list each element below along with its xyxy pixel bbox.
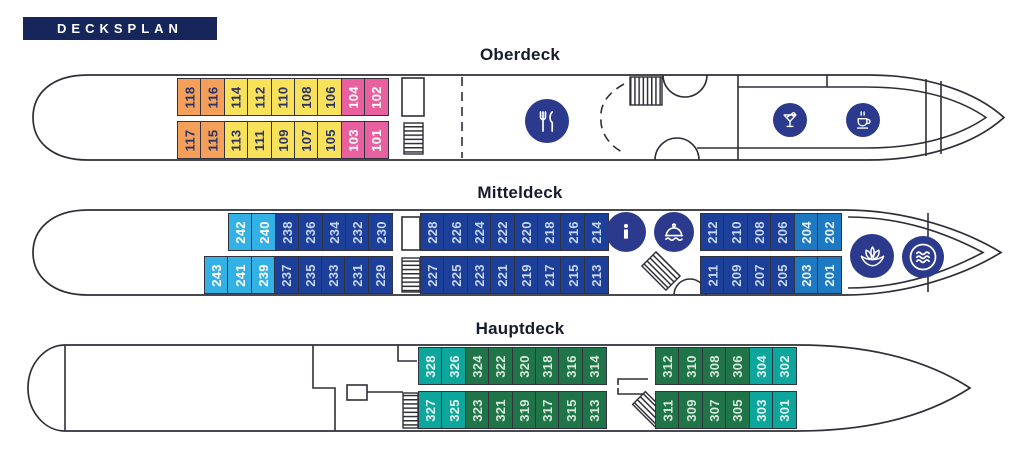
cabin-number: 220 (519, 221, 534, 244)
cabin-number: 326 (446, 355, 461, 378)
cabin-325[interactable]: 325 (441, 391, 466, 429)
cabin-number: 210 (728, 221, 743, 244)
cabin-210[interactable]: 210 (723, 213, 748, 251)
cabin-111[interactable]: 111 (247, 121, 272, 159)
cabin-number: 107 (299, 129, 314, 152)
cabin-227[interactable]: 227 (420, 256, 445, 294)
cabin-310[interactable]: 310 (678, 347, 703, 385)
cabin-number: 325 (446, 399, 461, 422)
cabin-number: 228 (425, 221, 440, 244)
cabin-number: 319 (517, 399, 532, 422)
cabin-number: 211 (705, 264, 720, 286)
hauptdeck-cabins-top-2: 312310308306304302 (655, 347, 797, 385)
cabin-number: 323 (470, 399, 485, 422)
cabin-306[interactable]: 306 (725, 347, 750, 385)
restaurant-icon (525, 99, 569, 143)
cabin-204[interactable]: 204 (794, 213, 819, 251)
cabin-number: 216 (565, 221, 580, 244)
cabin-number: 104 (346, 86, 361, 109)
cabin-323[interactable]: 323 (465, 391, 490, 429)
cabin-212[interactable]: 212 (700, 213, 725, 251)
cabin-229[interactable]: 229 (368, 256, 393, 294)
cabin-225[interactable]: 225 (443, 256, 468, 294)
cabin-207[interactable]: 207 (747, 256, 772, 294)
cabin-118[interactable]: 118 (177, 78, 202, 116)
cabin-number: 324 (470, 355, 485, 378)
cabin-106[interactable]: 106 (317, 78, 342, 116)
cabin-number: 327 (423, 399, 438, 422)
cabin-327[interactable]: 327 (418, 391, 443, 429)
cabin-307[interactable]: 307 (702, 391, 727, 429)
cabin-239[interactable]: 239 (251, 256, 276, 294)
cabin-number: 317 (540, 399, 555, 422)
cabin-303[interactable]: 303 (749, 391, 774, 429)
cabin-number: 217 (542, 264, 557, 287)
cabin-102[interactable]: 102 (364, 78, 389, 116)
deck-title-mitteldeck: Mitteldeck (420, 183, 620, 203)
cabin-112[interactable]: 112 (247, 78, 272, 116)
cabin-236[interactable]: 236 (298, 213, 323, 251)
cabin-number: 116 (205, 86, 220, 108)
cabin-number: 302 (777, 355, 792, 378)
cabin-number: 310 (683, 355, 698, 378)
cabin-232[interactable]: 232 (345, 213, 370, 251)
cabin-number: 313 (587, 399, 602, 422)
cabin-205[interactable]: 205 (770, 256, 795, 294)
cabin-238[interactable]: 238 (275, 213, 300, 251)
cabin-226[interactable]: 226 (443, 213, 468, 251)
cabin-number: 201 (822, 264, 837, 287)
cabin-number: 322 (493, 355, 508, 378)
cabin-228[interactable]: 228 (420, 213, 445, 251)
cabin-number: 233 (326, 264, 341, 287)
cabin-314[interactable]: 314 (582, 347, 607, 385)
cabin-216[interactable]: 216 (560, 213, 585, 251)
cabin-312[interactable]: 312 (655, 347, 680, 385)
cabin-number: 229 (373, 264, 388, 287)
cabin-number: 306 (730, 355, 745, 378)
cabin-number: 305 (730, 399, 745, 422)
cabin-number: 214 (589, 221, 604, 244)
cabin-220[interactable]: 220 (514, 213, 539, 251)
decksplan-header: DECKSPLAN (23, 17, 217, 40)
cabin-number: 303 (754, 399, 769, 422)
cabin-number: 315 (563, 399, 578, 422)
cabin-number: 240 (256, 221, 271, 244)
cabin-number: 227 (425, 264, 440, 287)
cabin-315[interactable]: 315 (558, 391, 583, 429)
cabin-213[interactable]: 213 (584, 256, 609, 294)
cabin-107[interactable]: 107 (294, 121, 319, 159)
cabin-321[interactable]: 321 (488, 391, 513, 429)
cabin-number: 225 (448, 264, 463, 287)
hauptdeck-cabins-bottom-1: 327325323321319317315313 (418, 391, 607, 429)
cabin-number: 110 (276, 86, 291, 108)
cabin-number: 114 (229, 86, 244, 108)
mitteldeck-cabins-top-1: 242240238236234232230 (228, 213, 393, 251)
cabin-number: 108 (299, 86, 314, 109)
cabin-number: 218 (542, 221, 557, 244)
cabin-328[interactable]: 328 (418, 347, 443, 385)
cabin-316[interactable]: 316 (558, 347, 583, 385)
cabin-115[interactable]: 115 (200, 121, 225, 159)
cabin-319[interactable]: 319 (512, 391, 537, 429)
cabin-number: 243 (209, 264, 224, 287)
cabin-318[interactable]: 318 (535, 347, 560, 385)
cabin-number: 115 (205, 129, 220, 151)
cabin-243[interactable]: 243 (204, 256, 229, 294)
cabin-211[interactable]: 211 (700, 256, 725, 294)
cabin-302[interactable]: 302 (772, 347, 797, 385)
cabin-number: 304 (754, 355, 769, 378)
oberdeck-cabins-bottom: 117115113111109107105103101 (177, 121, 389, 159)
cabin-number: 242 (233, 221, 248, 244)
cabin-number: 105 (322, 129, 337, 152)
cabin-number: 101 (369, 129, 384, 152)
cabin-number: 308 (707, 355, 722, 378)
cabin-number: 117 (182, 129, 197, 151)
cabin-217[interactable]: 217 (537, 256, 562, 294)
cabin-201[interactable]: 201 (817, 256, 842, 294)
cabin-110[interactable]: 110 (271, 78, 296, 116)
cabin-320[interactable]: 320 (512, 347, 537, 385)
cabin-235[interactable]: 235 (298, 256, 323, 294)
cabin-number: 309 (683, 399, 698, 422)
cabin-116[interactable]: 116 (200, 78, 225, 116)
cabin-number: 207 (752, 264, 767, 287)
ship-deck-plan: DECKSPLAN Oberdeck Mitteldeck Hauptdeck … (0, 0, 1035, 453)
cabin-313[interactable]: 313 (582, 391, 607, 429)
mitteldeck-cabins-top-3: 212210208206204202 (700, 213, 842, 251)
cabin-number: 205 (775, 264, 790, 287)
cabin-202[interactable]: 202 (817, 213, 842, 251)
cabin-number: 213 (589, 264, 604, 287)
cabin-number: 202 (822, 221, 837, 244)
cabin-number: 226 (448, 221, 463, 244)
cabin-number: 222 (495, 221, 510, 244)
cabin-number: 301 (777, 399, 792, 422)
cabin-number: 312 (660, 355, 675, 378)
hauptdeck-cabins-bottom-2: 311309307305303301 (655, 391, 797, 429)
cabin-number: 221 (495, 264, 510, 287)
cabin-317[interactable]: 317 (535, 391, 560, 429)
cabin-304[interactable]: 304 (749, 347, 774, 385)
cabin-number: 231 (349, 264, 364, 287)
cabin-105[interactable]: 105 (317, 121, 342, 159)
cabin-number: 103 (346, 129, 361, 152)
cabin-number: 224 (472, 221, 487, 244)
cabin-241[interactable]: 241 (227, 256, 252, 294)
cabin-number: 238 (280, 221, 295, 244)
deck-title-oberdeck: Oberdeck (420, 45, 620, 65)
cabin-237[interactable]: 237 (274, 256, 299, 294)
cabin-240[interactable]: 240 (251, 213, 276, 251)
pool-waves-icon (902, 236, 944, 278)
cabin-231[interactable]: 231 (344, 256, 369, 294)
cabin-322[interactable]: 322 (488, 347, 513, 385)
cabin-number: 314 (587, 355, 602, 378)
service-bell-icon (654, 212, 694, 252)
cabin-number: 235 (303, 264, 318, 287)
cabin-301[interactable]: 301 (772, 391, 797, 429)
cabin-208[interactable]: 208 (747, 213, 772, 251)
cabin-number: 223 (472, 264, 487, 287)
oberdeck-cabins-top: 118116114112110108106104102 (177, 78, 389, 116)
cabin-221[interactable]: 221 (490, 256, 515, 294)
cabin-108[interactable]: 108 (294, 78, 319, 116)
cabin-number: 113 (229, 129, 244, 151)
mitteldeck-cabins-bottom-1: 243241239237235233231229 (204, 256, 393, 294)
cabin-number: 106 (322, 86, 337, 109)
spa-lotus-icon (850, 234, 894, 278)
cabin-number: 102 (369, 86, 384, 109)
cabin-number: 230 (373, 221, 388, 244)
cabin-number: 111 (252, 129, 267, 150)
mitteldeck-cabins-bottom-3: 211209207205203201 (700, 256, 842, 294)
mitteldeck-cabins-bottom-2: 227225223221219217215213 (420, 256, 609, 294)
cabin-number: 239 (256, 264, 271, 287)
cabin-104[interactable]: 104 (341, 78, 366, 116)
cabin-number: 234 (327, 221, 342, 244)
cabin-number: 318 (540, 355, 555, 378)
cabin-234[interactable]: 234 (322, 213, 347, 251)
cabin-number: 321 (493, 399, 508, 422)
cabin-117[interactable]: 117 (177, 121, 202, 159)
cabin-305[interactable]: 305 (725, 391, 750, 429)
hauptdeck-cabins-top-1: 328326324322320318316314 (418, 347, 607, 385)
cabin-209[interactable]: 209 (723, 256, 748, 294)
cabin-224[interactable]: 224 (467, 213, 492, 251)
cabin-206[interactable]: 206 (770, 213, 795, 251)
cabin-324[interactable]: 324 (465, 347, 490, 385)
cabin-number: 208 (752, 221, 767, 244)
cabin-number: 236 (303, 221, 318, 244)
cabin-number: 311 (660, 399, 675, 421)
cabin-number: 112 (252, 86, 267, 108)
info-icon (606, 212, 646, 252)
cabin-number: 328 (423, 355, 438, 378)
cabin-number: 307 (707, 399, 722, 422)
cabin-219[interactable]: 219 (514, 256, 539, 294)
deck-title-hauptdeck: Hauptdeck (420, 319, 620, 339)
cabin-218[interactable]: 218 (537, 213, 562, 251)
cabin-number: 206 (775, 221, 790, 244)
cabin-number: 118 (182, 86, 197, 108)
cabin-326[interactable]: 326 (441, 347, 466, 385)
cabin-number: 203 (799, 264, 814, 287)
cabin-number: 109 (276, 129, 291, 152)
cabin-number: 204 (799, 221, 814, 244)
cabin-103[interactable]: 103 (341, 121, 366, 159)
cabin-223[interactable]: 223 (467, 256, 492, 294)
cabin-242[interactable]: 242 (228, 213, 253, 251)
cabin-number: 212 (705, 221, 720, 244)
cabin-number: 215 (565, 264, 580, 287)
cabin-number: 241 (232, 264, 247, 287)
mitteldeck-cabins-top-2: 228226224222220218216214 (420, 213, 609, 251)
cabin-number: 320 (517, 355, 532, 378)
cabin-114[interactable]: 114 (224, 78, 249, 116)
cabin-number: 237 (279, 264, 294, 287)
cabin-number: 232 (350, 221, 365, 244)
cabin-230[interactable]: 230 (368, 213, 393, 251)
cabin-222[interactable]: 222 (490, 213, 515, 251)
cabin-308[interactable]: 308 (702, 347, 727, 385)
cabin-309[interactable]: 309 (678, 391, 703, 429)
cabin-number: 219 (519, 264, 534, 287)
decksplan-title: DECKSPLAN (57, 21, 183, 36)
cabin-109[interactable]: 109 (271, 121, 296, 159)
cabin-101[interactable]: 101 (364, 121, 389, 159)
cabin-number: 209 (728, 264, 743, 287)
cabin-215[interactable]: 215 (560, 256, 585, 294)
cabin-113[interactable]: 113 (224, 121, 249, 159)
coffee-icon (846, 103, 880, 137)
cabin-233[interactable]: 233 (321, 256, 346, 294)
cocktail-icon (773, 103, 807, 137)
cabin-203[interactable]: 203 (794, 256, 819, 294)
cabin-311[interactable]: 311 (655, 391, 680, 429)
cabin-number: 316 (563, 355, 578, 378)
